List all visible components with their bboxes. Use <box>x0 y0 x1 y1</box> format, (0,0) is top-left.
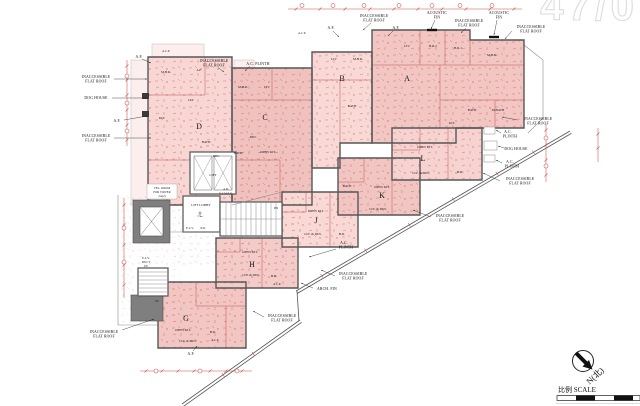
annotation-line: A.C. <box>340 241 348 245</box>
room-label: A.C.P. <box>273 282 281 286</box>
annotation-line: FLAT ROOF <box>85 139 106 143</box>
unit-c-label: C <box>262 113 267 122</box>
annotation-ac-plinth: A.C. PLINTH <box>496 130 517 139</box>
lift-label: LIFT <box>209 173 217 177</box>
annotation-line: PLINTH <box>503 135 518 139</box>
annotation-dog-house: DOG HOUSE <box>498 146 528 151</box>
room-label: DIN. <box>213 154 220 158</box>
annotation-line: DOG HOUSE <box>84 96 108 100</box>
room-label: LIV <box>331 57 337 61</box>
room-label: KIT. <box>159 116 166 120</box>
room-label: DIN. <box>250 135 257 139</box>
annotation-line: FIN <box>496 16 503 20</box>
room-label: LIV <box>404 44 410 48</box>
unit-h-label: H <box>249 260 255 269</box>
annotation-line: A.C. <box>506 160 514 164</box>
room-label: BATH <box>202 140 211 144</box>
elv-label: E.L.V. <box>186 226 194 230</box>
unit-l-label: L <box>421 154 426 163</box>
room-label: M.B.R. <box>487 53 497 57</box>
annotation-line: FLAT ROOF <box>271 319 292 323</box>
annotation-inaccessible-flat-roof: INACCESSIBLE FLAT ROOF <box>360 14 389 30</box>
unit-areas <box>118 30 524 348</box>
room-label: LIV. & DIN. <box>242 273 259 277</box>
room-label: B.R. <box>210 330 216 334</box>
unit-a-label: A <box>404 74 410 83</box>
room-label: M.B.R. <box>353 57 363 61</box>
room-label: B.R. <box>457 170 463 174</box>
room-label: LIV <box>188 98 194 102</box>
room-label: B.R. <box>339 232 345 236</box>
annotation-line: A.F. <box>113 119 120 123</box>
unit-j-label: J <box>314 216 317 225</box>
annotation-af: A.F. <box>327 26 339 37</box>
scale-bar: 比例 SCALE <box>556 385 640 404</box>
ad-label: A.D. <box>223 187 229 191</box>
room-label: OPEN KIT. <box>374 185 390 189</box>
annotation-line: A.F. <box>327 26 334 30</box>
annotation-ac-plinth: A.C. PLINTH <box>496 160 519 169</box>
annotation-line: ACOUSTIC <box>427 11 448 15</box>
room-label: BATH <box>348 104 357 108</box>
scale-label: 比例 SCALE <box>558 385 596 394</box>
annotation-line: FLAT ROOF <box>85 80 106 84</box>
annotation-line: INACCESSIBLE <box>524 117 553 121</box>
annotation-acoustic-fin: ACOUSTIC FIN <box>427 11 448 29</box>
annotation-arch-fin: ARCH. FIN <box>301 283 337 291</box>
room-label: BATH <box>343 184 352 188</box>
pd-label: P.D. <box>200 226 205 230</box>
room-label: LIV. & DIN. <box>179 339 196 343</box>
annotation-line: INACCESSIBLE <box>339 272 368 276</box>
room-label: LIV. & DIN. <box>369 207 386 211</box>
annotation-line: PLINTH <box>505 165 520 169</box>
annotation-line: DOG HOUSE <box>504 147 528 151</box>
annotation-inaccessible-flat-roof: INACCESSIBLE FLAT ROOF <box>253 311 297 323</box>
annotation-line: FLAT ROOF <box>93 335 114 339</box>
room-label: OPEN KIT. <box>175 328 191 332</box>
annotation-line: FLAT ROOF <box>527 122 548 126</box>
lift-lobby-label: LIFT LOBBY <box>191 203 211 207</box>
room-label: OPEN KIT. <box>260 150 276 154</box>
room-label: B.R.1 <box>454 46 462 50</box>
annotation-line: FIN <box>434 16 441 20</box>
unit-k-label: K <box>379 191 385 200</box>
annotation-line: FLAT ROOF <box>439 219 460 223</box>
room-label: LIV. & DIN. <box>304 232 321 236</box>
unit-d-label: D <box>196 122 202 131</box>
annotation-line: INACCESSIBLE <box>455 19 484 23</box>
acp-platform-label: A.C.P. <box>162 49 170 53</box>
annotation-line: FLAT ROOF <box>203 64 224 68</box>
up-label: UP <box>155 299 159 303</box>
annotation-line: INACCESSIBLE <box>82 75 111 79</box>
room-label: LIV. & DIN. <box>412 171 429 175</box>
annotation-line: INACCESSIBLE <box>360 14 389 18</box>
annotation-line: INACCESSIBLE <box>200 59 229 63</box>
annotation-line: A.C. <box>504 130 512 134</box>
annotation-line: A.F. <box>135 55 142 59</box>
elv-duct-label: UP <box>144 264 148 268</box>
photo-watermark: 47/0 <box>540 0 638 29</box>
annotation-line: FLAT ROOF <box>509 182 530 186</box>
annotation-acoustic-fin: ACOUSTIC FIN <box>489 11 510 35</box>
room-label: OPEN KIT. <box>417 145 433 149</box>
annotation-inaccessible-flat-roof: INACCESSIBLE FLAT ROOF <box>413 210 465 223</box>
room-label: A.C.P. <box>211 338 219 342</box>
north-arrow-icon: N(北) <box>573 351 607 387</box>
annotation-line: A.F. <box>187 352 194 356</box>
annotation-line: FLAT ROOF <box>458 24 479 28</box>
rsmrr-label: R.S.M.R.R. <box>219 192 233 196</box>
annotation-line: PLINTH <box>339 246 354 250</box>
room-label: M.B.R. <box>161 70 171 74</box>
room-label: KIT. <box>449 121 456 125</box>
annotation-line: A.C. PLINTH <box>246 62 269 66</box>
annotation-line: FLAT ROOF <box>363 19 384 23</box>
annotation-line: INACCESSIBLE <box>436 214 465 218</box>
af-mark-label: A.F. <box>196 68 201 72</box>
annotation-line: INACCESSIBLE <box>82 134 111 138</box>
unit-g-label: G <box>183 314 189 323</box>
room-label: OPEN KIT. <box>308 209 324 213</box>
floor-plan-sheet: 47/0 <box>0 0 640 406</box>
room-label: LIV <box>264 85 270 89</box>
room-label: BATH <box>468 108 477 112</box>
room-label: M.B.R. <box>238 85 248 89</box>
annotation-line: A.F. <box>392 26 399 30</box>
room-label: M.BATH <box>492 108 505 112</box>
annotation-line: INACCESSIBLE <box>517 25 546 29</box>
annotation-inaccessible-flat-roof: INACCESSIBLE FLAT ROOF <box>483 173 535 186</box>
floor-plan-drawing: 47/0 <box>0 0 640 406</box>
room-label: OPEN KIT. <box>242 250 258 254</box>
room-label: BATH <box>234 151 243 155</box>
annotation-line: ARCH. FIN <box>317 287 337 291</box>
annotation-line: FLAT ROOF <box>342 277 363 281</box>
tel-room-label: 2A(2) <box>158 194 165 198</box>
unit-b-label: B <box>339 74 344 83</box>
annotation-inaccessible-flat-roof: INACCESSIBLE FLAT ROOF <box>505 25 546 39</box>
room-label: B.R.2 <box>429 44 437 48</box>
annotation-line: INACCESSIBLE <box>268 314 297 318</box>
room-label: B.R. <box>271 274 277 278</box>
annotation-line: FLAT ROOF <box>520 30 541 34</box>
annotation-line: INACCESSIBLE <box>506 177 535 181</box>
annotation-line: INACCESSIBLE <box>90 330 119 334</box>
acp-platform-label: A.C.P. <box>298 31 306 35</box>
annotation-line: ACOUSTIC <box>489 11 510 15</box>
